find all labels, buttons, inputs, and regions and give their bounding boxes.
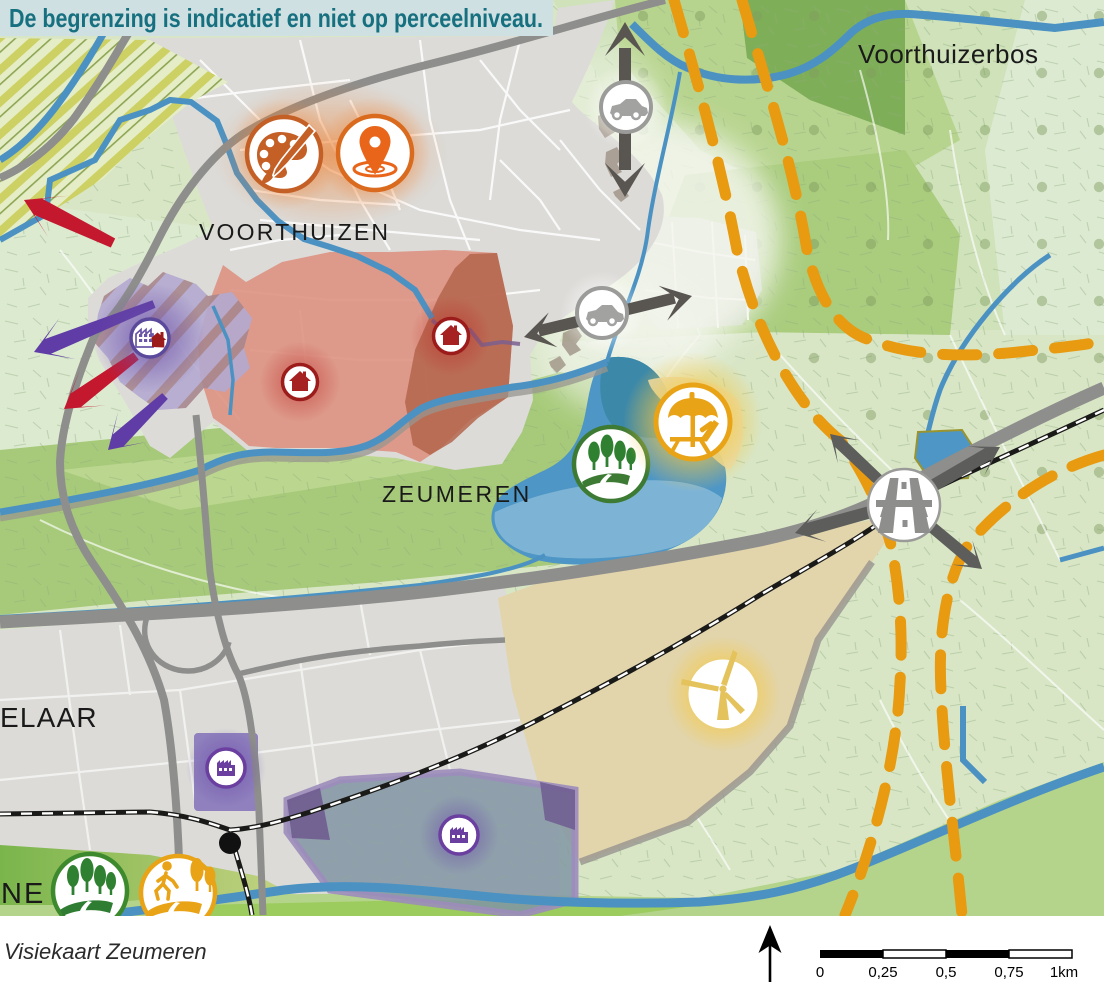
svg-text:VOORTHUIZEN: VOORTHUIZEN bbox=[199, 219, 390, 245]
svg-text:ELAAR: ELAAR bbox=[0, 702, 98, 733]
svg-text:Visiekaart Zeumeren: Visiekaart Zeumeren bbox=[4, 939, 207, 964]
svg-text:ZEUMEREN: ZEUMEREN bbox=[382, 481, 532, 507]
svg-text:0: 0 bbox=[816, 964, 824, 981]
svg-text:0,5: 0,5 bbox=[936, 964, 957, 981]
svg-text:NE: NE bbox=[1, 878, 45, 910]
svg-text:Voorthuizerbos: Voorthuizerbos bbox=[858, 39, 1038, 69]
svg-text:0,75: 0,75 bbox=[994, 964, 1023, 981]
svg-text:De begrenzing is indicatief en: De begrenzing is indicatief en niet op p… bbox=[9, 3, 543, 33]
svg-text:0,25: 0,25 bbox=[868, 964, 897, 981]
svg-text:1km: 1km bbox=[1050, 964, 1078, 981]
